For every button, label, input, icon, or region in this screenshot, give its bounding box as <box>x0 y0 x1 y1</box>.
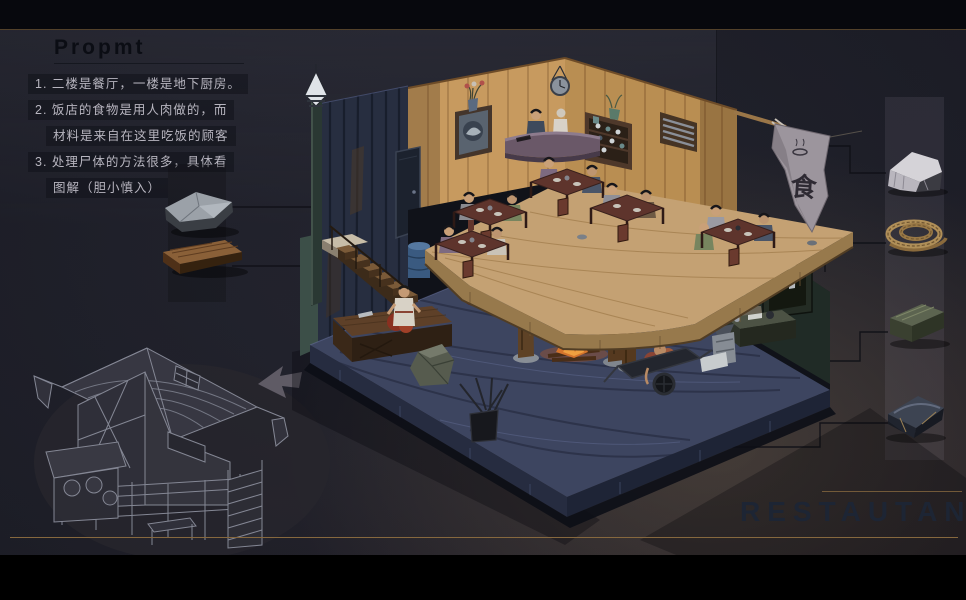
exterior-sketch <box>34 348 330 560</box>
metal-chest-icon <box>890 304 950 349</box>
flag-character: 食 <box>790 171 819 203</box>
rope-coil-icon <box>888 222 948 257</box>
stone-slab-icon <box>165 192 239 238</box>
sheet-title: RESTAUTANT <box>740 496 962 528</box>
wood-plank-icon <box>163 240 248 278</box>
cloth-covered-crate-icon <box>888 152 948 197</box>
footer-bar: NWA 场景 DATE:2015.08.24 STUDENTS:张美苑 SCHO… <box>0 555 966 600</box>
title-rule-top <box>822 491 962 492</box>
whale-picture-frame <box>455 105 492 160</box>
concept-art-sheet: Propmt 1. 二楼是餐厅，一楼是地下厨房。 2. 饭店的食物是用人肉做的，… <box>0 0 966 600</box>
footer-rule <box>10 537 958 538</box>
